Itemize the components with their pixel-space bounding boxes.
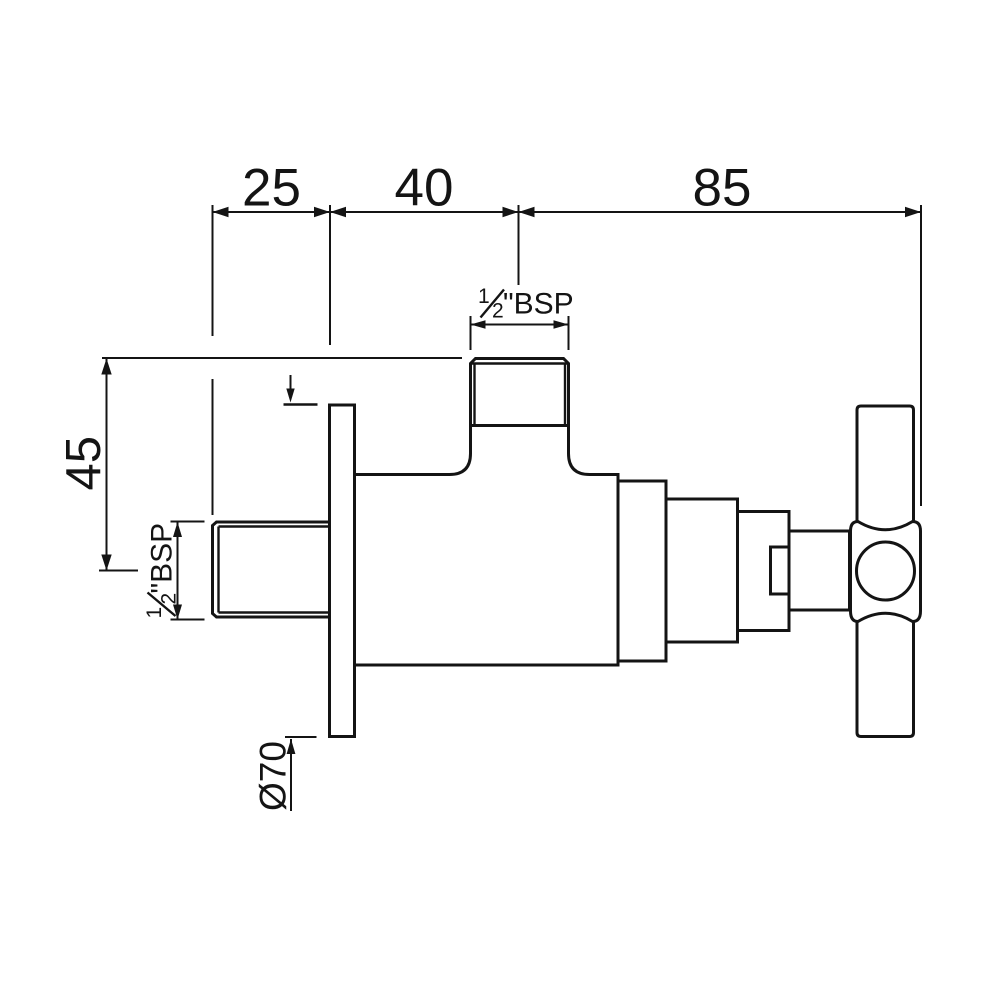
svg-text:1: 1	[478, 285, 490, 308]
svg-text:25: 25	[242, 159, 301, 218]
svg-text:1: 1	[143, 607, 166, 619]
svg-text:45: 45	[57, 436, 111, 491]
svg-text:85: 85	[693, 159, 752, 218]
svg-text:Ø70: Ø70	[253, 741, 294, 811]
svg-text:"BSP: "BSP	[503, 288, 574, 321]
svg-text:2: 2	[158, 593, 181, 605]
svg-text:2: 2	[492, 300, 504, 323]
svg-text:"BSP: "BSP	[146, 523, 179, 594]
svg-text:40: 40	[395, 159, 454, 218]
